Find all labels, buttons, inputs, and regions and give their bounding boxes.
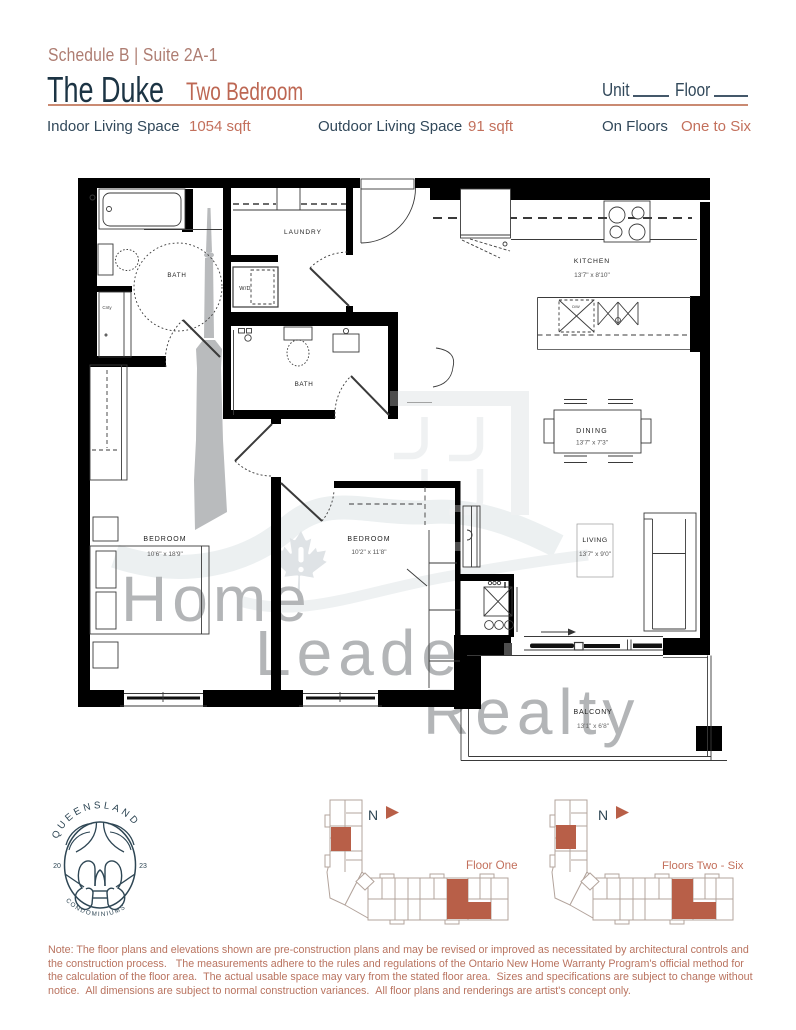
svg-text:KITCHEN: KITCHEN xyxy=(574,258,610,265)
svg-text:BALCONY: BALCONY xyxy=(573,709,612,716)
svg-text:23: 23 xyxy=(139,863,147,870)
svg-text:LAUNDRY: LAUNDRY xyxy=(284,229,322,236)
svg-text:Cnty: Cnty xyxy=(102,305,112,310)
svg-text:W/D: W/D xyxy=(239,286,251,292)
svg-text:13'7" x 7'3": 13'7" x 7'3" xyxy=(576,440,609,447)
svg-text:BEDROOM: BEDROOM xyxy=(143,536,186,543)
svg-text:DINING: DINING xyxy=(576,428,608,435)
svg-text:BEDROOM: BEDROOM xyxy=(347,536,390,543)
svg-text:Floor One: Floor One xyxy=(466,859,518,872)
svg-text:13'7" x 9'0": 13'7" x 9'0" xyxy=(579,551,612,558)
svg-text:20: 20 xyxy=(53,863,61,870)
svg-text:13'1" x 6'8": 13'1" x 6'8" xyxy=(577,723,610,730)
svg-text:13'7" x 8'10": 13'7" x 8'10" xyxy=(574,272,610,279)
svg-text:BATH: BATH xyxy=(167,272,186,279)
svg-text:D/W: D/W xyxy=(572,305,580,309)
svg-text:LIVING: LIVING xyxy=(582,537,607,544)
svg-text:N: N xyxy=(598,807,608,823)
svg-text:10'6" x 18'9": 10'6" x 18'9" xyxy=(147,551,183,558)
svg-text:BATH: BATH xyxy=(295,381,314,388)
svg-text:N: N xyxy=(368,807,378,823)
svg-text:Floors Two - Six: Floors Two - Six xyxy=(662,860,744,872)
svg-text:10'2" x 11'8": 10'2" x 11'8" xyxy=(351,549,387,556)
